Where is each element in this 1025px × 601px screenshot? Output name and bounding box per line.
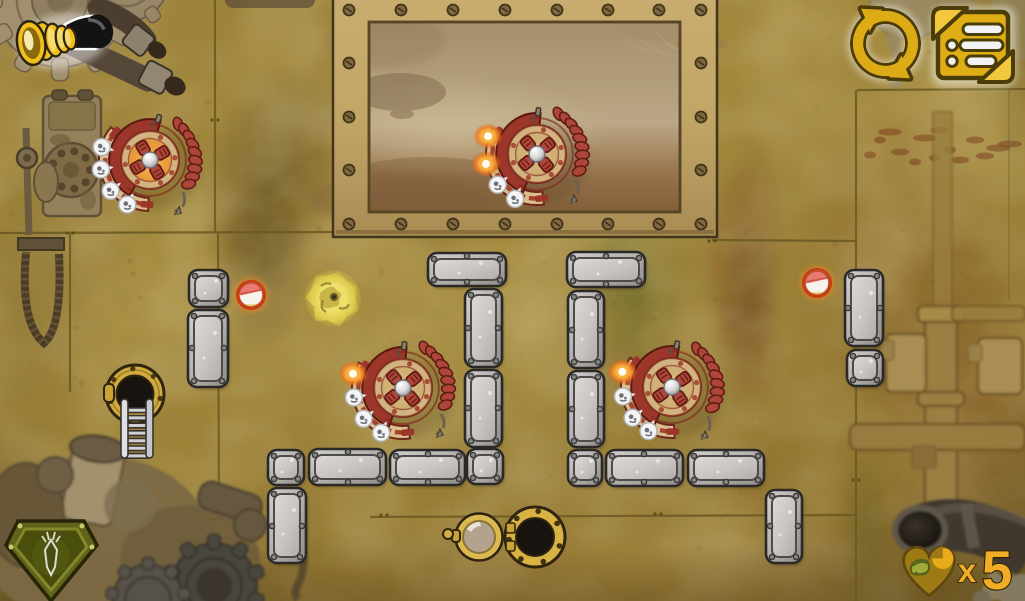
svg-text:x: x xyxy=(958,552,977,589)
svg-text:5: 5 xyxy=(982,539,1013,601)
